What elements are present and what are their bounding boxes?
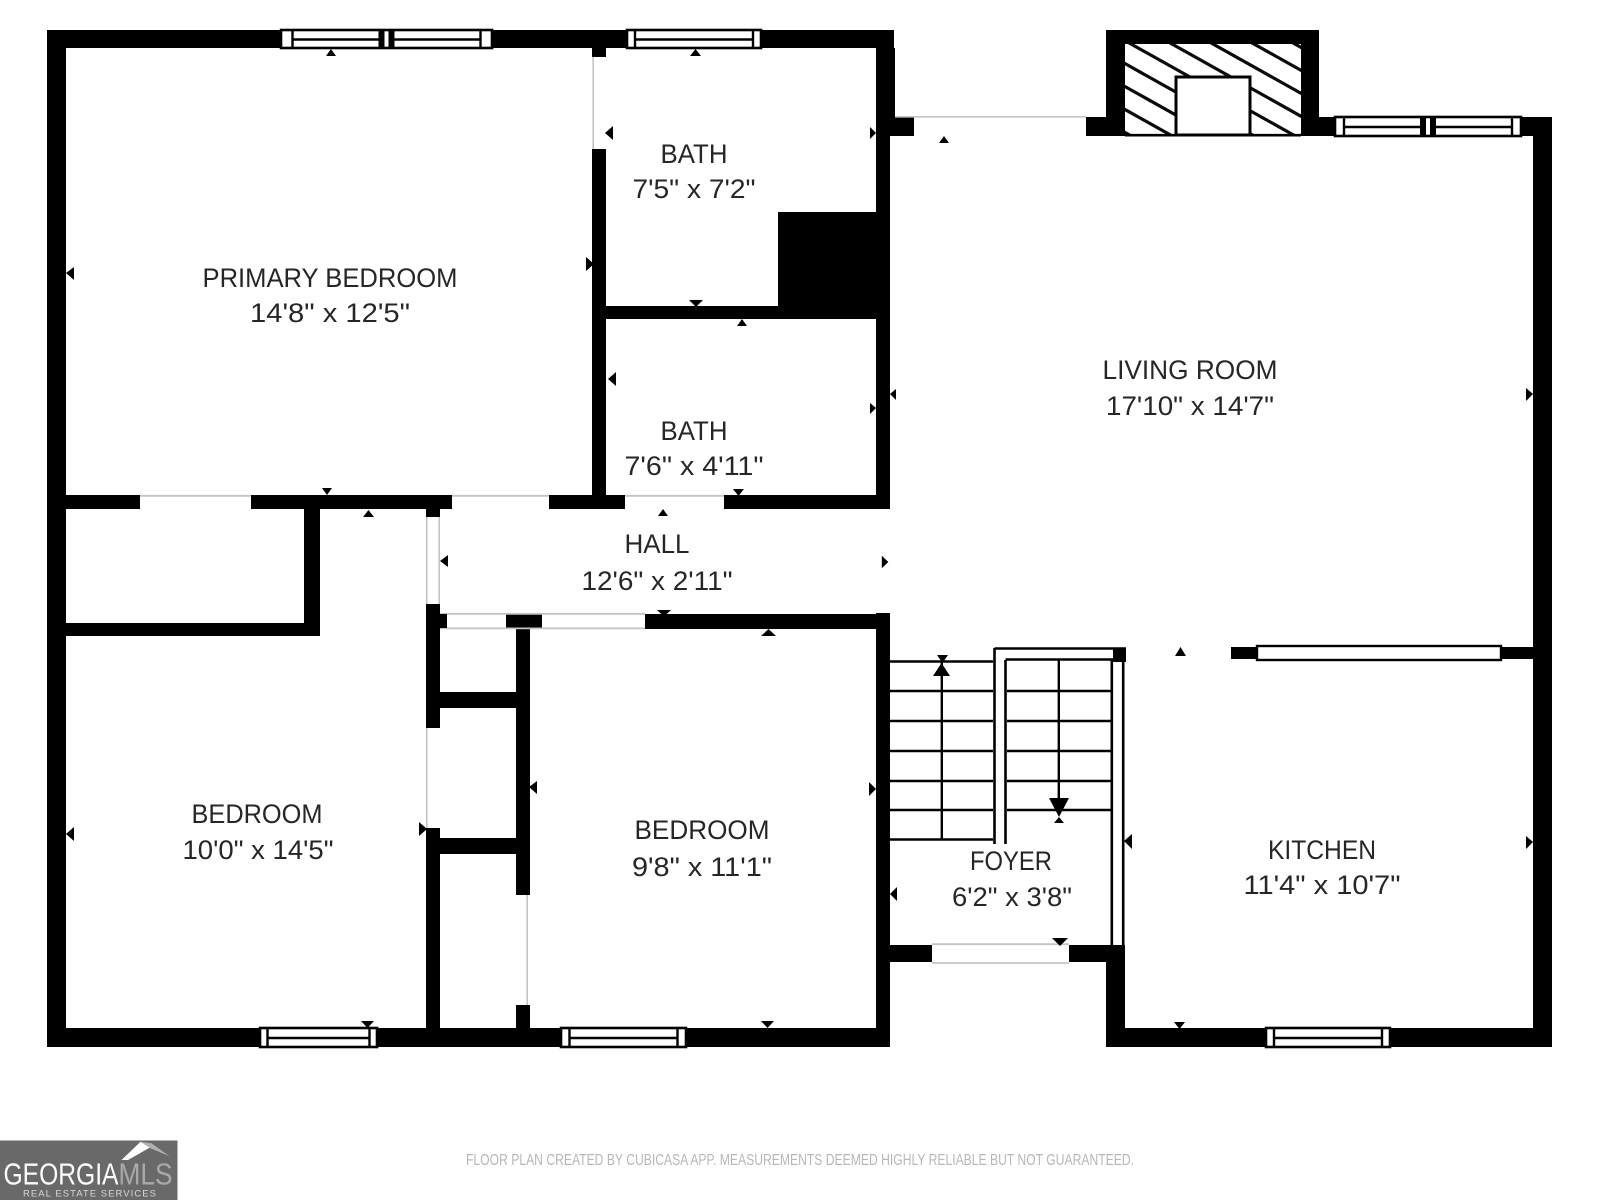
svg-text:BATH: BATH — [661, 416, 728, 446]
svg-text:PRIMARY BEDROOM: PRIMARY BEDROOM — [203, 263, 458, 293]
svg-text:BATH: BATH — [661, 139, 728, 169]
svg-text:9'8" x 11'1": 9'8" x 11'1" — [632, 852, 772, 882]
svg-text:FLOOR PLAN CREATED BY CUBICASA: FLOOR PLAN CREATED BY CUBICASA APP. MEAS… — [466, 1152, 1134, 1169]
svg-text:HALL: HALL — [625, 529, 690, 559]
svg-text:BEDROOM: BEDROOM — [192, 799, 323, 829]
svg-text:GEORGIA: GEORGIA — [4, 1157, 119, 1192]
svg-text:7'5" x 7'2": 7'5" x 7'2" — [633, 174, 756, 204]
svg-text:12'6" x 2'11": 12'6" x 2'11" — [582, 566, 733, 596]
svg-text:14'8" x 12'5": 14'8" x 12'5" — [250, 298, 410, 328]
svg-text:LIVING ROOM: LIVING ROOM — [1103, 355, 1278, 385]
svg-text:KITCHEN: KITCHEN — [1268, 835, 1376, 865]
svg-text:7'6" x 4'11": 7'6" x 4'11" — [625, 451, 764, 481]
svg-text:MLS: MLS — [119, 1157, 173, 1192]
svg-text:FOYER: FOYER — [970, 846, 1052, 876]
svg-text:BEDROOM: BEDROOM — [635, 815, 770, 845]
svg-text:6'2" x 3'8": 6'2" x 3'8" — [952, 882, 1072, 912]
svg-text:11'4" x 10'7": 11'4" x 10'7" — [1244, 870, 1401, 900]
svg-text:REAL ESTATE SERVICES: REAL ESTATE SERVICES — [23, 1189, 157, 1199]
svg-text:10'0" x 14'5": 10'0" x 14'5" — [183, 835, 334, 865]
svg-text:17'10" x 14'7": 17'10" x 14'7" — [1106, 391, 1274, 421]
